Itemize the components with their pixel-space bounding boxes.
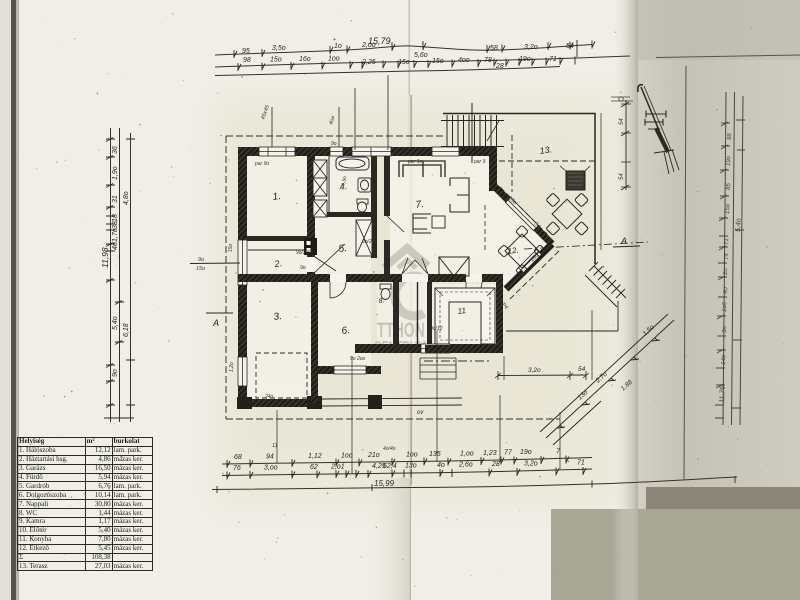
svg-text:4o: 4o (112, 242, 119, 250)
svg-text:9o/2,5o: 9o/2,5o (296, 250, 313, 256)
svg-text:ov: ov (417, 410, 424, 416)
svg-text:36: 36 (112, 146, 119, 154)
svg-text:62: 62 (310, 464, 318, 471)
svg-text:1,2o: 1,2o (229, 362, 235, 372)
svg-text:2o: 2o (723, 268, 729, 277)
svg-text:3,2o: 3,2o (528, 367, 541, 374)
svg-text:68: 68 (234, 454, 242, 461)
svg-text:135: 135 (429, 451, 441, 458)
svg-text:4o/4o: 4o/4o (383, 446, 396, 452)
svg-text:19o: 19o (519, 56, 531, 63)
svg-text:3,5o: 3,5o (272, 45, 286, 52)
svg-text:77: 77 (504, 450, 513, 457)
svg-text:74: 74 (724, 253, 730, 261)
svg-text:2,25: 2,25 (361, 59, 376, 66)
svg-text:71: 71 (724, 238, 730, 245)
svg-text:par 9: par 9 (473, 159, 486, 165)
svg-text:1o: 1o (334, 43, 342, 50)
svg-text:15o: 15o (398, 59, 410, 66)
svg-text:4oo: 4oo (458, 57, 470, 64)
svg-text:5,4o: 5,4o (735, 218, 742, 232)
svg-text:15o: 15o (196, 266, 205, 272)
svg-text:1oo: 1oo (406, 452, 418, 459)
svg-text:28: 28 (491, 461, 500, 468)
svg-text:2,oo: 2,oo (361, 42, 376, 49)
svg-text:4o: 4o (723, 287, 729, 295)
svg-text:12.: 12. (507, 246, 519, 256)
svg-text:1,oo: 1,oo (460, 451, 474, 458)
svg-text:1,9o: 1,9o (112, 166, 119, 180)
svg-text:16o: 16o (299, 56, 311, 63)
svg-text:2,o1: 2,o1 (330, 464, 345, 471)
svg-text:3,2o: 3,2o (524, 461, 538, 468)
svg-text:1o5: 1o5 (722, 301, 728, 312)
svg-text:2.: 2. (273, 258, 283, 269)
svg-text:85: 85 (726, 183, 732, 191)
svg-text:A: A (212, 318, 219, 328)
svg-text:76: 76 (233, 465, 241, 472)
svg-text:9o: 9o (300, 265, 306, 271)
svg-text:28: 28 (495, 63, 504, 70)
svg-text:2,6o: 2,6o (458, 462, 473, 469)
svg-text:15o: 15o (432, 58, 444, 65)
svg-text:54: 54 (578, 366, 586, 373)
svg-text:19o: 19o (726, 155, 732, 166)
svg-text:par 9o: par 9o (254, 161, 269, 167)
svg-text:9o: 9o (331, 141, 337, 147)
svg-text:4o: 4o (437, 462, 445, 469)
svg-text:1,23: 1,23 (483, 450, 497, 457)
svg-text:54: 54 (619, 118, 625, 125)
svg-text:98: 98 (243, 57, 251, 64)
svg-text:1oo: 1oo (328, 56, 340, 63)
svg-text:88: 88 (727, 133, 733, 141)
svg-text:1,7o: 1,7o (112, 228, 119, 242)
svg-text:6,18: 6,18 (123, 323, 130, 337)
svg-text:13.: 13. (539, 144, 553, 156)
svg-text:9o/12: 9o/12 (430, 326, 443, 332)
svg-text:58: 58 (490, 45, 498, 52)
svg-text:78: 78 (484, 57, 492, 64)
svg-text:5.: 5. (338, 243, 348, 255)
svg-text:4,8o: 4,8o (123, 191, 130, 205)
svg-text:62,4: 62,4 (383, 463, 397, 470)
svg-text:6.: 6. (341, 325, 351, 337)
svg-text:3,oo: 3,oo (264, 465, 278, 472)
svg-text:21o: 21o (367, 452, 380, 459)
svg-text:A: A (620, 236, 627, 246)
svg-text:31: 31 (112, 195, 119, 203)
svg-text:3o: 3o (722, 326, 728, 334)
svg-text:1,12: 1,12 (308, 453, 322, 460)
svg-text:15o: 15o (270, 57, 282, 64)
svg-text:11,98: 11,98 (100, 247, 110, 268)
svg-text:94: 94 (266, 454, 274, 461)
svg-text:8.: 8. (378, 297, 385, 305)
svg-text:+: + (333, 37, 336, 43)
svg-text:18: 18 (112, 214, 119, 222)
svg-text:24o: 24o (264, 394, 274, 400)
svg-text:71: 71 (577, 460, 585, 467)
svg-text:19o: 19o (520, 449, 532, 456)
svg-text:15o: 15o (228, 243, 234, 252)
svg-text:1oo: 1oo (341, 453, 353, 460)
svg-text:9o: 9o (112, 369, 119, 377)
svg-text:54: 54 (566, 43, 574, 50)
svg-text:71: 71 (549, 56, 557, 63)
svg-text:11,76: 11,76 (719, 386, 727, 403)
svg-text:1.: 1. (272, 191, 282, 203)
svg-text:9o: 9o (198, 257, 204, 263)
svg-text:14o: 14o (721, 354, 727, 365)
svg-text:5,6o: 5,6o (414, 52, 428, 59)
svg-text:95: 95 (242, 48, 250, 55)
svg-text:38: 38 (112, 221, 119, 229)
svg-text:15,99: 15,99 (374, 479, 395, 488)
svg-text:9o/2oo: 9o/2oo (362, 239, 378, 245)
svg-text:13o: 13o (405, 463, 417, 470)
svg-text:11: 11 (457, 306, 466, 316)
svg-text:54: 54 (619, 173, 625, 180)
svg-text:5,4o: 5,4o (112, 316, 119, 330)
svg-text:par 9o: par 9o (407, 159, 422, 165)
svg-text:3,2o: 3,2o (524, 44, 538, 51)
svg-text:15o: 15o (725, 203, 731, 214)
svg-text:7.: 7. (415, 199, 425, 211)
svg-text:3.: 3. (273, 311, 283, 323)
